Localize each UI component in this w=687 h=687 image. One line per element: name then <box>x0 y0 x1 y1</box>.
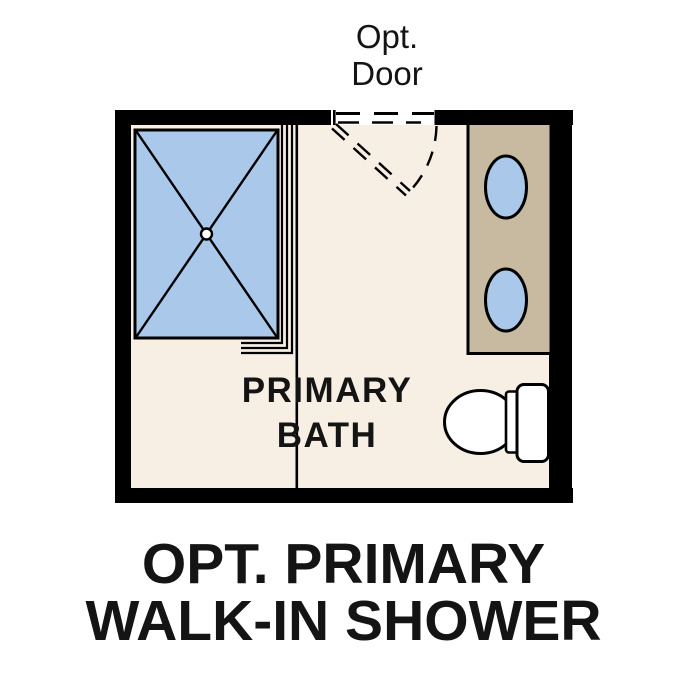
wall-right <box>549 110 572 503</box>
wall-left <box>115 110 131 503</box>
opt-door-label: Opt. Door <box>325 18 449 92</box>
sink-basin-top <box>486 156 527 218</box>
shower-drain-icon <box>201 229 212 240</box>
door-jamb-left <box>333 110 336 125</box>
room-name-label: PRIMARY BATH <box>217 368 437 458</box>
plan-caption-title: OPT. PRIMARY WALK-IN SHOWER <box>0 536 687 650</box>
wall-bottom <box>115 488 573 503</box>
toilet-tank <box>517 385 549 462</box>
sink-basin-bottom <box>486 269 527 331</box>
wall-top-left-of-door <box>115 110 331 125</box>
wall-top-right-of-door <box>437 110 573 125</box>
floor-plan-page: Opt. Door PRIMARY BATH OPT. PRIMARY WALK… <box>0 0 687 687</box>
door-jamb-right <box>435 110 438 125</box>
